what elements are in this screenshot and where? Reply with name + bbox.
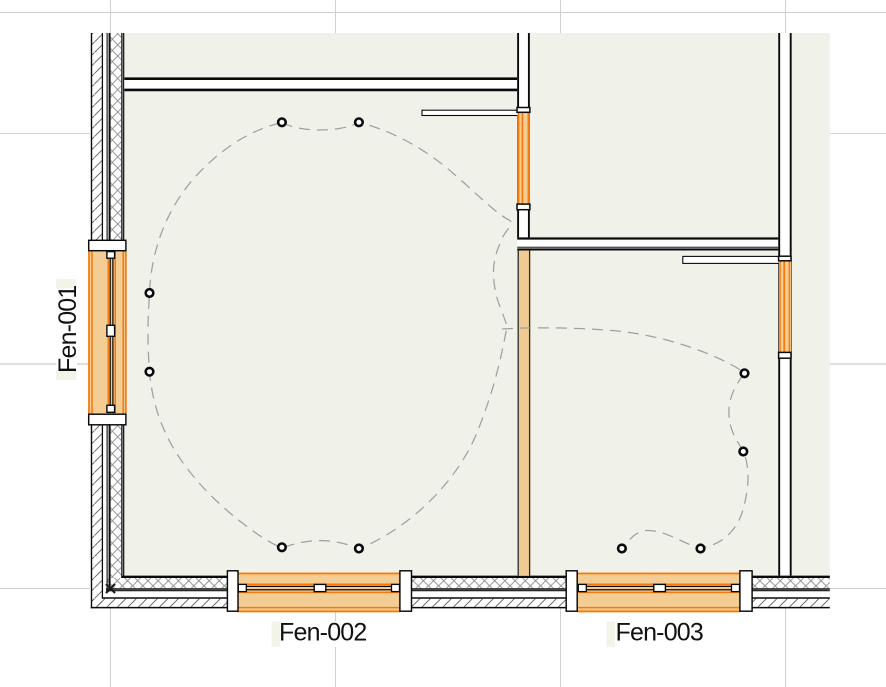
svg-text:Fen-002: Fen-002 bbox=[279, 619, 367, 647]
svg-text:Fen-001: Fen-001 bbox=[54, 285, 82, 373]
svg-text:Fen-003: Fen-003 bbox=[616, 619, 704, 647]
